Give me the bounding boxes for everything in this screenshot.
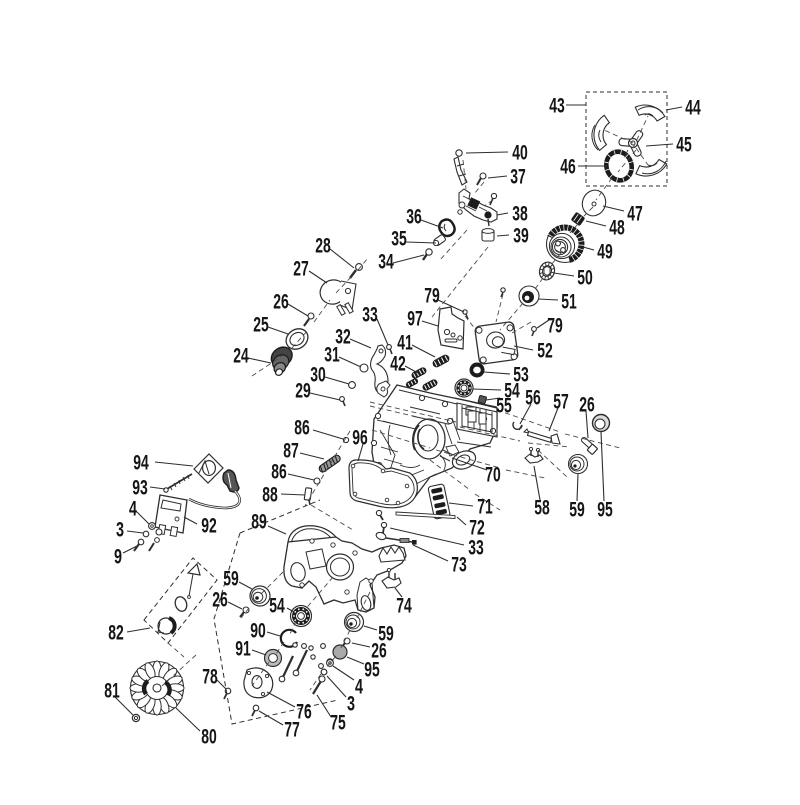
svg-text:80: 80 bbox=[201, 726, 217, 749]
svg-text:59: 59 bbox=[378, 623, 394, 646]
svg-text:97: 97 bbox=[407, 308, 423, 331]
svg-text:87: 87 bbox=[283, 440, 299, 463]
svg-text:47: 47 bbox=[627, 203, 643, 226]
svg-text:25: 25 bbox=[253, 314, 269, 337]
svg-text:41: 41 bbox=[397, 332, 413, 355]
svg-text:58: 58 bbox=[534, 497, 550, 520]
svg-text:3: 3 bbox=[116, 519, 124, 542]
svg-text:96: 96 bbox=[352, 427, 368, 450]
svg-text:55: 55 bbox=[496, 395, 512, 418]
svg-text:44: 44 bbox=[685, 97, 701, 120]
svg-text:46: 46 bbox=[560, 156, 576, 179]
svg-text:78: 78 bbox=[202, 666, 218, 689]
svg-text:94: 94 bbox=[133, 452, 149, 475]
svg-text:77: 77 bbox=[284, 719, 300, 742]
svg-text:70: 70 bbox=[485, 464, 501, 487]
svg-text:79: 79 bbox=[424, 285, 440, 308]
svg-text:9: 9 bbox=[114, 546, 122, 569]
svg-text:50: 50 bbox=[577, 267, 593, 290]
svg-text:38: 38 bbox=[512, 203, 528, 226]
svg-text:24: 24 bbox=[233, 345, 249, 368]
svg-text:36: 36 bbox=[406, 206, 422, 229]
svg-text:91: 91 bbox=[235, 638, 251, 661]
svg-text:95: 95 bbox=[597, 499, 613, 522]
svg-text:27: 27 bbox=[293, 258, 309, 281]
svg-text:86: 86 bbox=[294, 417, 310, 440]
svg-text:71: 71 bbox=[477, 496, 493, 519]
svg-text:37: 37 bbox=[510, 166, 526, 189]
svg-text:4: 4 bbox=[129, 498, 137, 521]
svg-text:43: 43 bbox=[549, 95, 565, 118]
svg-text:89: 89 bbox=[251, 511, 267, 534]
svg-text:33: 33 bbox=[468, 537, 484, 560]
svg-text:39: 39 bbox=[513, 225, 529, 248]
svg-text:26: 26 bbox=[212, 589, 228, 612]
svg-text:34: 34 bbox=[378, 251, 394, 274]
svg-text:82: 82 bbox=[108, 622, 124, 645]
svg-text:35: 35 bbox=[391, 228, 407, 251]
svg-text:74: 74 bbox=[396, 595, 412, 618]
svg-text:28: 28 bbox=[315, 235, 331, 258]
svg-text:30: 30 bbox=[310, 364, 326, 387]
svg-text:26: 26 bbox=[579, 394, 595, 417]
svg-text:86: 86 bbox=[271, 461, 287, 484]
svg-text:49: 49 bbox=[597, 241, 613, 264]
svg-text:45: 45 bbox=[676, 134, 692, 157]
svg-text:90: 90 bbox=[250, 620, 266, 643]
svg-text:92: 92 bbox=[201, 515, 217, 538]
svg-text:73: 73 bbox=[451, 554, 467, 577]
svg-text:79: 79 bbox=[547, 315, 563, 338]
svg-text:54: 54 bbox=[269, 595, 285, 618]
svg-text:93: 93 bbox=[132, 477, 148, 500]
svg-text:56: 56 bbox=[525, 387, 541, 410]
svg-text:51: 51 bbox=[561, 291, 577, 314]
svg-text:81: 81 bbox=[104, 680, 120, 703]
svg-text:33: 33 bbox=[362, 304, 378, 327]
svg-text:3: 3 bbox=[347, 693, 355, 716]
svg-text:52: 52 bbox=[537, 340, 553, 363]
svg-text:26: 26 bbox=[273, 291, 289, 314]
svg-text:31: 31 bbox=[324, 344, 340, 367]
svg-text:29: 29 bbox=[295, 380, 311, 403]
svg-text:40: 40 bbox=[512, 142, 528, 165]
svg-text:75: 75 bbox=[330, 712, 346, 735]
svg-text:57: 57 bbox=[553, 391, 569, 414]
svg-text:59: 59 bbox=[569, 499, 585, 522]
svg-text:4: 4 bbox=[355, 676, 363, 699]
svg-text:42: 42 bbox=[390, 353, 406, 376]
svg-text:88: 88 bbox=[262, 484, 278, 507]
svg-text:48: 48 bbox=[609, 217, 625, 240]
svg-text:59: 59 bbox=[223, 568, 239, 591]
